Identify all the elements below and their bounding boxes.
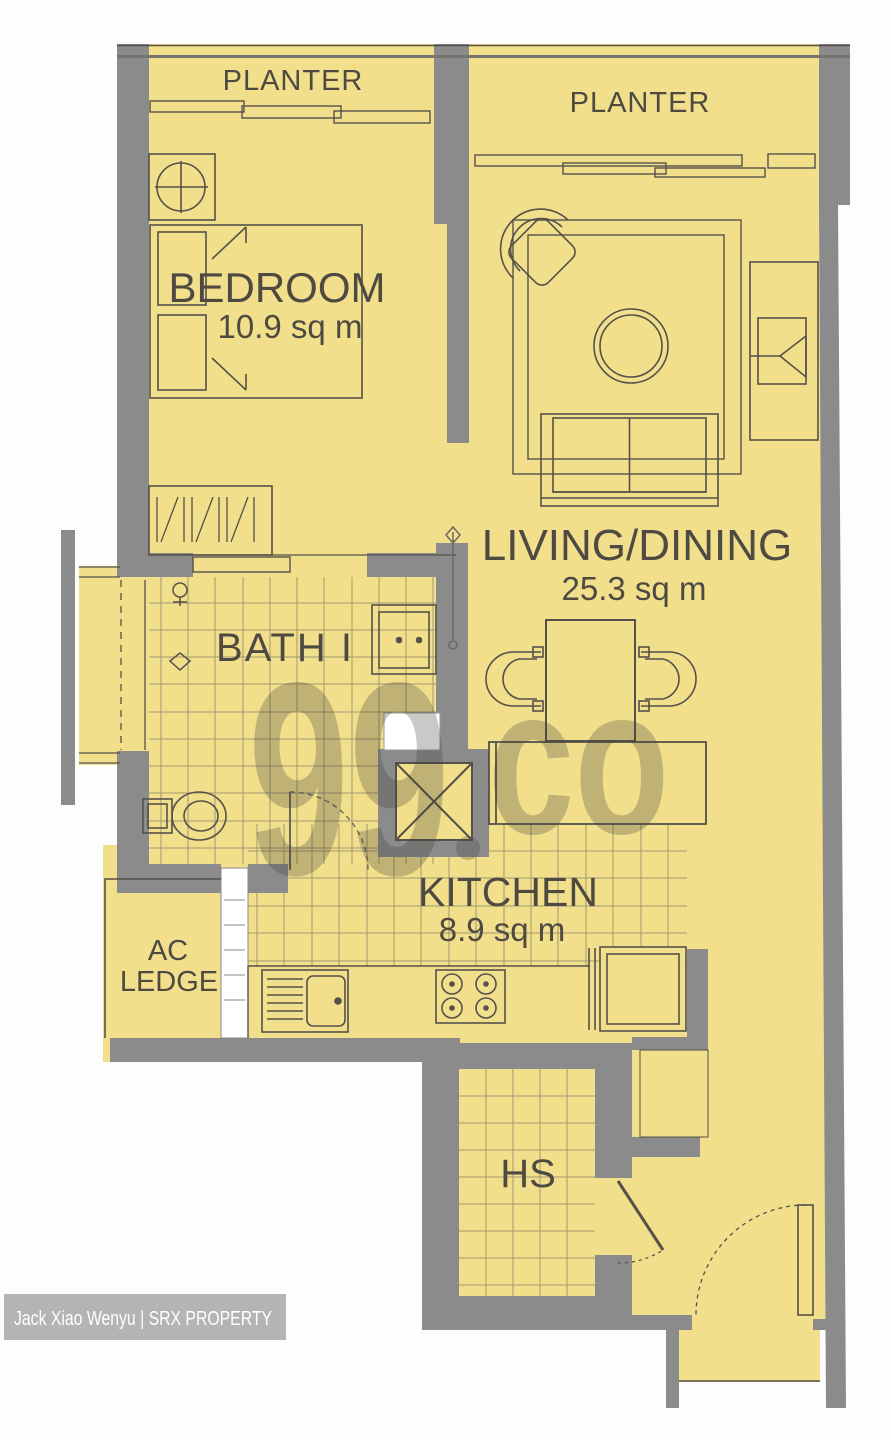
svg-text:Jack Xiao Wenyu | SRX PROPERTY: Jack Xiao Wenyu | SRX PROPERTY [14,1308,272,1330]
svg-text:99: 99 [248,626,450,933]
svg-text:AC: AC [148,935,188,967]
svg-text:BEDROOM: BEDROOM [168,264,385,311]
svg-text:10.9 sq m: 10.9 sq m [218,308,363,345]
svg-text:co: co [488,644,669,878]
svg-text:25.3 sq m: 25.3 sq m [562,570,707,607]
svg-text:8.9 sq m: 8.9 sq m [439,911,566,948]
svg-text:PLANTER: PLANTER [570,87,711,119]
svg-text:LEDGE: LEDGE [120,966,218,998]
svg-text:HS: HS [500,1152,556,1196]
svg-text:PLANTER: PLANTER [223,65,364,97]
svg-text:LIVING/DINING: LIVING/DINING [482,521,793,570]
